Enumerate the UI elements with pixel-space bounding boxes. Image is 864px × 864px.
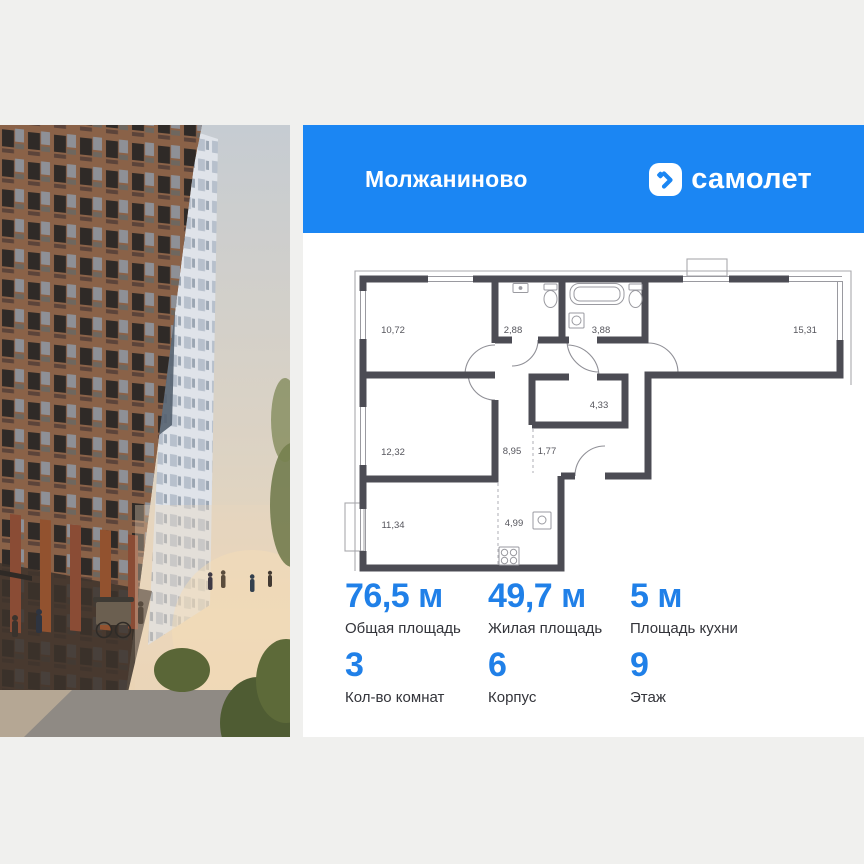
room-label-4-99: 4,99: [505, 518, 524, 529]
listing-card-panel: Молжаниново самолет: [303, 125, 864, 737]
stat-label: Кол-во комнат: [345, 689, 444, 707]
stat-kitchen-area: 5 м Площадь кухни: [630, 578, 738, 638]
stat-total-area: 76,5 м Общая площадь: [345, 578, 461, 638]
stat-floor-number: 9 Этаж: [630, 647, 666, 707]
brand-wordmark: самолет: [691, 163, 812, 196]
stat-rooms-count: 3 Кол-во комнат: [345, 647, 444, 707]
stat-value: 9: [630, 647, 666, 683]
room-label-12-32: 12,32: [381, 447, 405, 458]
stat-label: Площадь кухни: [630, 620, 738, 638]
stat-value: 3: [345, 647, 444, 683]
stat-building-number: 6 Корпус: [488, 647, 536, 707]
header-bar: Молжаниново самолет: [303, 125, 864, 233]
stat-value: 5 м: [630, 578, 738, 614]
room-label-4-33: 4,33: [590, 400, 609, 411]
stat-living-area: 49,7 м Жилая площадь: [488, 578, 602, 638]
walls: [360, 276, 844, 572]
stat-label: Жилая площадь: [488, 620, 602, 638]
project-title: Молжаниново: [365, 166, 528, 193]
facade-outline: [345, 259, 851, 571]
windows: [361, 277, 843, 552]
room-label-2-88: 2,88: [504, 325, 523, 336]
stat-label: Общая площадь: [345, 620, 461, 638]
room-label-1-77: 1,77: [538, 446, 557, 457]
room-label-15-31: 15,31: [793, 325, 817, 336]
samolet-logo: самолет: [649, 163, 812, 196]
floor-plan: 10,72 2,88 3,88 15,31 4,33 12,32 8,95 1,…: [343, 255, 863, 575]
building-photo: [0, 125, 290, 737]
room-label-3-88: 3,88: [592, 325, 611, 336]
page-background: { "header": { "project_name": "Молжанино…: [0, 0, 864, 864]
stat-label: Этаж: [630, 689, 666, 707]
samolet-logo-icon: [649, 163, 682, 196]
building-photo-art: [0, 125, 290, 737]
stat-value: 76,5 м: [345, 578, 461, 614]
room-label-11-34: 11,34: [381, 520, 404, 531]
room-label-10-72: 10,72: [381, 325, 405, 336]
stat-value: 49,7 м: [488, 578, 602, 614]
stat-value: 6: [488, 647, 536, 683]
bush: [154, 648, 210, 692]
stat-label: Корпус: [488, 689, 536, 707]
room-label-8-95: 8,95: [503, 446, 522, 457]
